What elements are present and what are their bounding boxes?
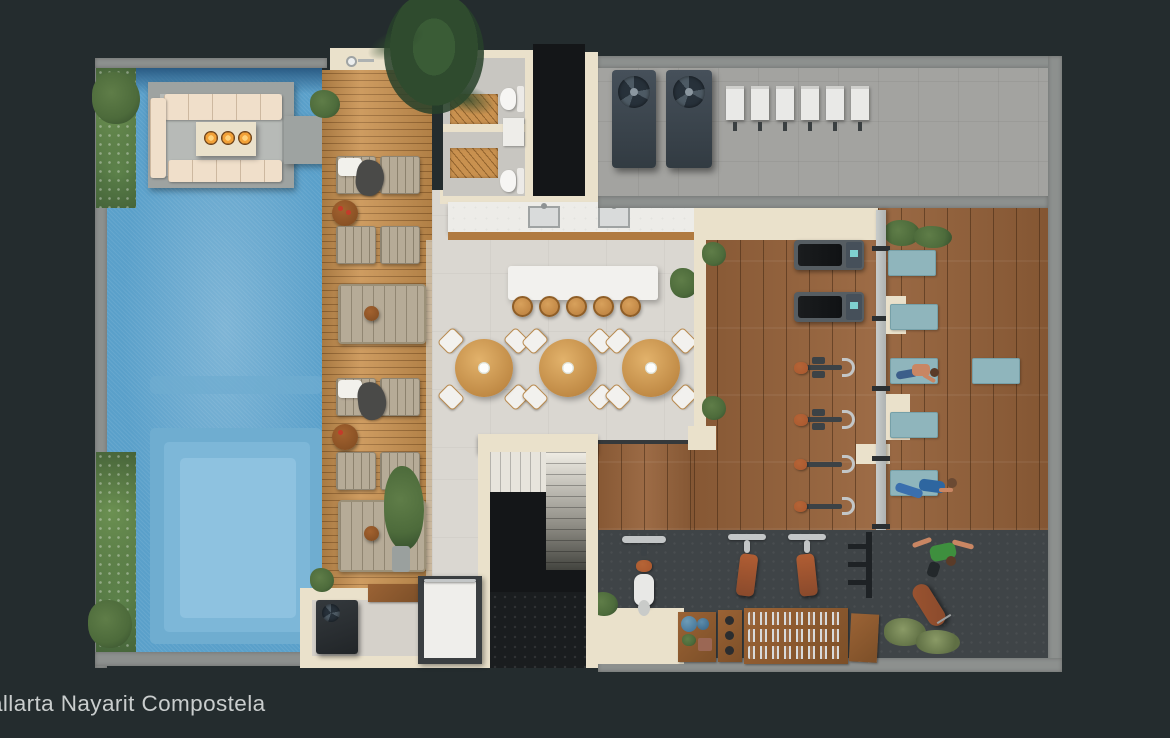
bar-island xyxy=(508,266,658,300)
bar-stool xyxy=(593,296,614,317)
hvac-fan-hub xyxy=(685,88,693,96)
daybed-tray xyxy=(364,306,379,321)
machine-pedal xyxy=(812,409,825,416)
bench-pad xyxy=(736,553,759,597)
bike-handlebar xyxy=(842,455,855,473)
bike-seat xyxy=(636,560,652,572)
person-arm xyxy=(939,488,953,492)
water-heater-pipe xyxy=(808,122,812,131)
stair-wall-right xyxy=(586,434,598,668)
upright-bike xyxy=(620,534,668,620)
bush-machine-room xyxy=(310,568,334,592)
dumbbell-rack xyxy=(744,608,848,664)
partition-mullion xyxy=(872,524,890,529)
elevator-cab xyxy=(424,582,476,658)
table-flowers xyxy=(562,362,574,374)
treadmill-screen xyxy=(850,250,858,257)
gym-floor-extension xyxy=(598,444,694,530)
water-heater-unit xyxy=(776,86,794,120)
person-head xyxy=(946,556,956,566)
gym-entry-ledge xyxy=(694,208,878,240)
lounge-chair xyxy=(380,226,420,264)
gym-planter-bush xyxy=(702,242,726,266)
treadmill xyxy=(794,292,864,322)
spin-bike xyxy=(794,494,862,520)
storage-box xyxy=(698,638,712,651)
water-heater-pipe xyxy=(858,122,862,131)
treadmill-belt xyxy=(798,244,842,266)
water-heater-unit xyxy=(801,86,819,120)
water-heater-pipe xyxy=(733,122,737,131)
exercise-machine xyxy=(792,406,862,434)
outer-wall-right xyxy=(1048,56,1062,670)
machine-pedal xyxy=(812,357,825,364)
daybed-tray xyxy=(364,526,379,541)
table-flowers xyxy=(645,362,657,374)
bush-bottom-left xyxy=(88,600,132,648)
dumbbell-row xyxy=(748,629,844,642)
gym-planter-bush xyxy=(702,396,726,420)
lounge-sofa-left xyxy=(150,98,166,178)
person-yoga xyxy=(896,352,948,392)
person-legs xyxy=(926,561,941,579)
gym-west-wall xyxy=(694,240,706,450)
yoga-mat xyxy=(888,250,936,276)
bar-stool xyxy=(566,296,587,317)
lounge-sofa-top xyxy=(164,94,282,120)
washbasin xyxy=(503,118,524,146)
outer-wall-pool-bottom xyxy=(95,652,327,666)
treadmill xyxy=(794,240,864,270)
kettlebell xyxy=(725,646,734,655)
kettlebell xyxy=(725,616,734,625)
spin-bike xyxy=(794,452,862,478)
daybed xyxy=(338,284,426,344)
exercise-ball xyxy=(697,618,709,630)
kitchen-sink xyxy=(598,206,630,228)
ball-storage-cubby xyxy=(678,612,716,662)
bike-handlebar xyxy=(622,536,666,543)
person-head xyxy=(947,478,957,488)
stair-upper-flight xyxy=(490,452,548,492)
bench-pad xyxy=(796,553,818,597)
mechanical-unit-fan xyxy=(322,604,340,622)
storage-ladder-rung xyxy=(848,580,872,585)
bar-stool xyxy=(620,296,641,317)
water-heater-unit xyxy=(751,86,769,120)
treadmill-belt xyxy=(798,296,842,318)
dumbbell-row xyxy=(748,612,844,625)
water-heater-unit xyxy=(726,86,744,120)
machine-handlebar xyxy=(842,410,855,429)
bike-handlebar xyxy=(842,497,855,515)
person-head xyxy=(930,368,939,377)
water-heater-unit xyxy=(851,86,869,120)
exercise-machine xyxy=(792,354,862,382)
bar-stool xyxy=(512,296,533,317)
fire-bowl xyxy=(204,131,218,145)
pool-bench-step xyxy=(150,376,322,394)
drink-glass xyxy=(338,206,343,211)
yoga-mat xyxy=(972,358,1020,384)
cubby-plant xyxy=(682,634,696,646)
stair-basement-floor xyxy=(490,592,586,668)
fire-bowl xyxy=(221,131,235,145)
yoga-mat xyxy=(890,304,938,330)
machine-seat xyxy=(794,414,808,426)
lounge-chair xyxy=(336,452,376,490)
bike-seat xyxy=(794,459,807,470)
kettlebell xyxy=(725,631,734,640)
shaft-wall xyxy=(585,52,598,198)
palm-plant-top-left xyxy=(92,72,140,124)
water-heater-unit xyxy=(826,86,844,120)
bush-deck-top xyxy=(310,90,340,118)
treadmill-screen xyxy=(850,302,858,309)
gym-wall-stub xyxy=(688,426,716,450)
machine-pedal xyxy=(812,371,825,378)
deck-side-table xyxy=(332,200,358,226)
kitchen-sink xyxy=(528,206,560,228)
incline-bench xyxy=(788,534,828,598)
bike-stem xyxy=(641,544,647,556)
toilet xyxy=(500,170,516,192)
elevator-rail xyxy=(424,579,476,582)
toilet xyxy=(517,168,524,194)
machine-seat xyxy=(794,362,808,374)
wood-counter xyxy=(368,584,420,602)
bike-seat xyxy=(794,501,807,512)
fire-bowl xyxy=(238,131,252,145)
caption: allarta Nayarit Compostela xyxy=(0,691,266,717)
stair-lower-flight xyxy=(546,452,586,570)
lounge-bridge xyxy=(284,116,326,164)
pool-tanning-shelf-top xyxy=(180,458,296,618)
fern-pot xyxy=(392,546,410,572)
table-flowers xyxy=(478,362,490,374)
storage-box-wood xyxy=(849,613,879,662)
person-boxing xyxy=(910,532,976,582)
outer-wall-pool-top xyxy=(95,58,327,68)
terrace-corridor xyxy=(432,448,480,596)
gym-planter-bush xyxy=(914,226,952,248)
toilet xyxy=(517,86,524,112)
deck-side-table xyxy=(332,424,358,450)
floor-plan-render: allarta Nayarit Compostela xyxy=(0,0,1170,738)
outdoor-shower-arm xyxy=(358,59,374,62)
light-shaft xyxy=(533,44,585,196)
incline-bench xyxy=(728,534,768,598)
bench-stem xyxy=(744,540,750,553)
partition-mullion xyxy=(872,386,890,391)
lounge-chair xyxy=(380,378,420,416)
dumbbell-row xyxy=(748,646,844,659)
yoga-mat xyxy=(890,412,938,438)
storage-ladder-rung xyxy=(848,544,872,549)
storage-ladder-rung xyxy=(848,562,872,567)
person-arm xyxy=(912,537,933,549)
machine-handlebar xyxy=(842,358,855,377)
drink-glass xyxy=(338,430,343,435)
machine-pedal xyxy=(812,423,825,430)
drink-glass xyxy=(346,210,351,215)
hvac-fan-hub xyxy=(630,88,638,96)
lounge-chair xyxy=(336,226,376,264)
lounge-chair xyxy=(380,156,420,194)
outdoor-shower-head xyxy=(346,56,357,67)
exercise-ball xyxy=(681,616,697,632)
outer-wall-top-right xyxy=(598,56,1062,68)
bar-stool xyxy=(539,296,560,317)
shower-wood-floor xyxy=(450,148,498,178)
water-heater-pipe xyxy=(758,122,762,131)
bike-wheel xyxy=(638,600,650,616)
glass-partition xyxy=(876,210,886,530)
faucet xyxy=(541,203,547,209)
kettlebell-shelf xyxy=(718,610,742,662)
gym-divider-wall xyxy=(598,196,1048,208)
stair-header-wall xyxy=(478,434,598,452)
partition-mullion xyxy=(872,456,890,461)
water-heater-pipe xyxy=(783,122,787,131)
bench-stem xyxy=(804,540,810,553)
kitchen-counter-front xyxy=(448,232,702,240)
bush-bottom-right xyxy=(916,630,960,654)
toilet xyxy=(500,88,516,110)
person-yoga xyxy=(893,464,963,508)
water-heater-pipe xyxy=(833,122,837,131)
lounge-sofa-bottom xyxy=(168,160,282,182)
